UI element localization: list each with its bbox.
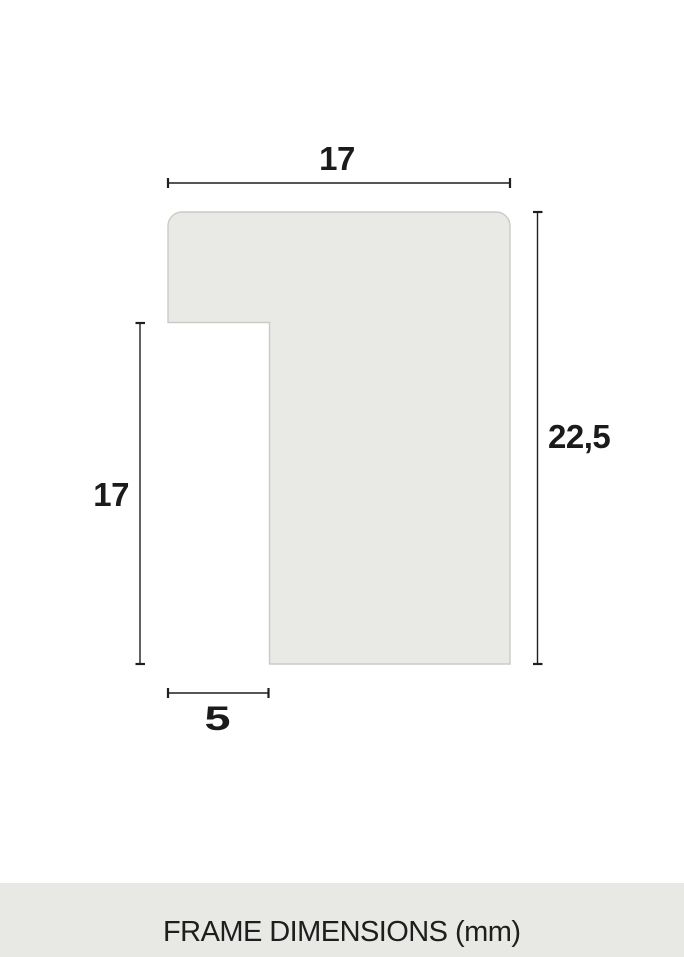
svg-text:5: 5 <box>205 700 231 738</box>
svg-text:17: 17 <box>93 476 129 513</box>
svg-text:FRAME DIMENSIONS (mm): FRAME DIMENSIONS (mm) <box>163 916 521 948</box>
svg-text:17: 17 <box>319 140 355 177</box>
svg-text:22,5: 22,5 <box>548 418 610 455</box>
